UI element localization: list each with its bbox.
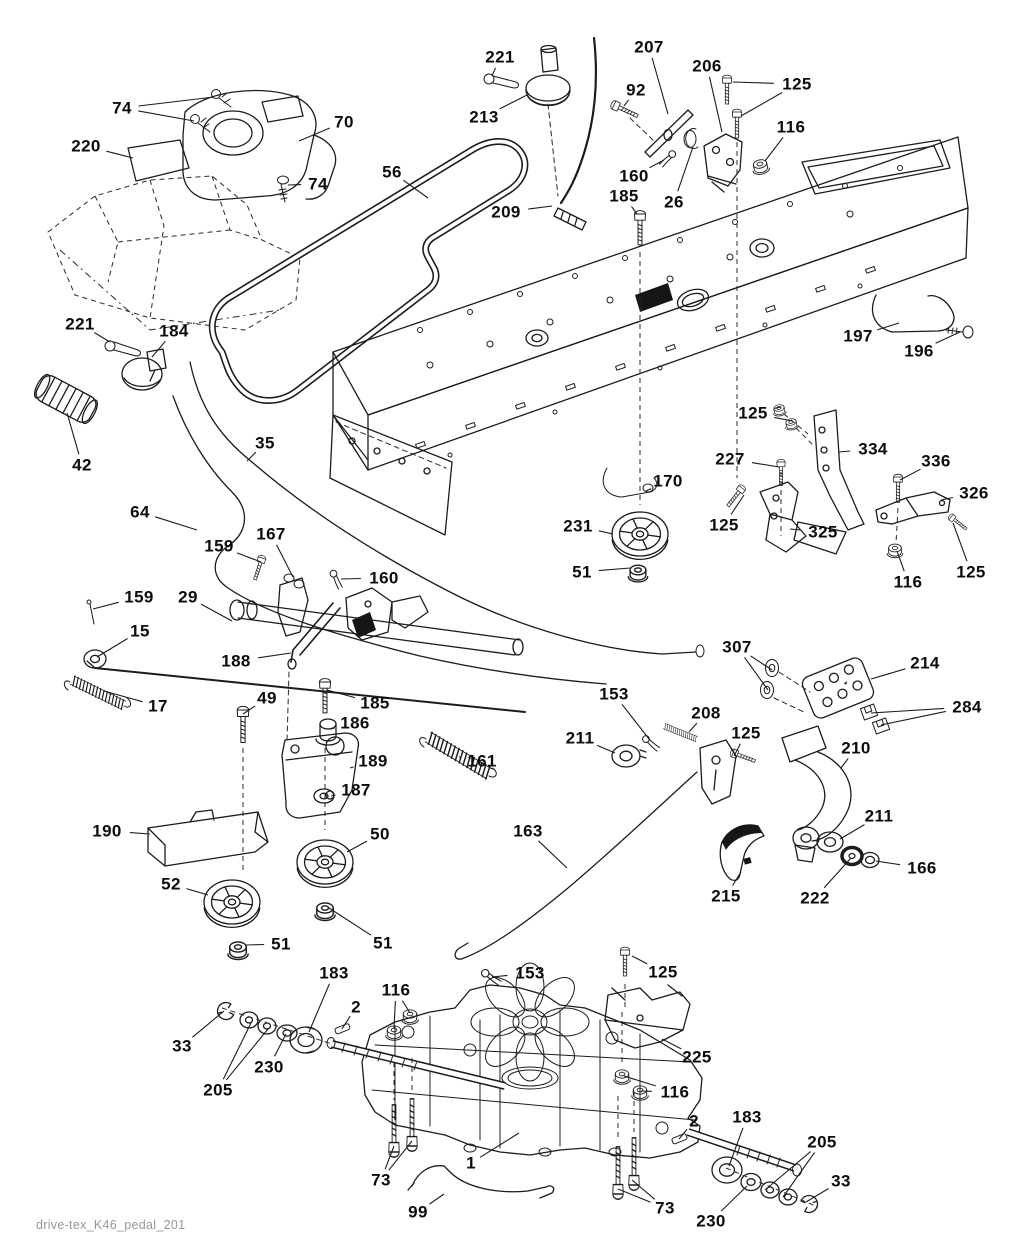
leader-line-307 — [751, 656, 772, 670]
part-label-170: 170 — [653, 473, 683, 490]
leader-line-35 — [247, 452, 256, 461]
part-label-33: 33 — [831, 1173, 851, 1190]
leader-line-211 — [597, 745, 615, 753]
leader-line-116 — [897, 551, 904, 571]
part-label-33: 33 — [172, 1038, 192, 1055]
part-label-214: 214 — [910, 655, 940, 672]
leader-line-326 — [941, 498, 953, 501]
leader-line-205 — [223, 1023, 251, 1079]
part-label-125: 125 — [738, 405, 768, 422]
leader-line-205 — [765, 1152, 811, 1190]
leader-line-230 — [721, 1186, 747, 1211]
leader-line-125 — [953, 523, 967, 561]
leader-line-307 — [745, 657, 769, 690]
part-label-186: 186 — [340, 715, 370, 732]
part-label-189: 189 — [358, 753, 388, 770]
part-label-209: 209 — [491, 204, 521, 221]
leader-line-51 — [246, 945, 264, 946]
part-label-2: 2 — [351, 999, 361, 1016]
part-label-336: 336 — [921, 453, 951, 470]
part-label-51: 51 — [572, 564, 592, 581]
leader-line-73 — [389, 1141, 412, 1170]
part-label-207: 207 — [634, 39, 664, 56]
part-label-99: 99 — [408, 1204, 428, 1221]
leader-line-183 — [729, 1128, 743, 1166]
leader-line-190 — [130, 833, 150, 834]
part-label-187: 187 — [341, 782, 371, 799]
leader-line-210 — [841, 758, 848, 768]
leader-line-163 — [538, 841, 567, 868]
leader-line-153 — [622, 704, 649, 739]
leader-line-220 — [106, 151, 133, 158]
leader-line-336 — [900, 469, 921, 480]
part-label-213: 213 — [469, 109, 499, 126]
part-label-334: 334 — [858, 441, 888, 458]
part-label-116: 116 — [382, 982, 411, 999]
leader-line-325 — [790, 529, 800, 530]
leader-line-196 — [936, 332, 960, 343]
part-label-74: 74 — [308, 176, 328, 193]
leader-line-51 — [329, 908, 371, 935]
part-label-70: 70 — [334, 114, 354, 131]
part-label-211: 211 — [865, 808, 894, 825]
part-label-183: 183 — [732, 1109, 762, 1126]
part-label-73: 73 — [655, 1200, 675, 1217]
part-label-183: 183 — [319, 965, 349, 982]
parts-diagram-page: 7470220745622121320720692125116160185262… — [0, 0, 1024, 1259]
part-label-42: 42 — [72, 457, 92, 474]
leader-line-92 — [624, 100, 629, 106]
diagram-caption: drive-tex_K46_pedal_201 — [36, 1218, 185, 1232]
leader-line-188 — [258, 653, 291, 658]
leader-line-221 — [94, 333, 110, 342]
part-label-166: 166 — [907, 860, 937, 877]
leader-line-211 — [840, 825, 865, 839]
leader-line-206 — [710, 77, 723, 132]
leader-line-116 — [624, 1076, 656, 1086]
leader-line-213 — [500, 95, 527, 109]
part-label-125: 125 — [709, 517, 739, 534]
part-label-49: 49 — [257, 690, 277, 707]
leader-line-197 — [877, 323, 899, 330]
leader-line-17 — [104, 691, 143, 702]
leader-line-160 — [649, 160, 664, 168]
part-label-51: 51 — [271, 936, 291, 953]
part-label-73: 73 — [371, 1172, 391, 1189]
leader-line-284 — [871, 708, 944, 713]
part-label-325: 325 — [808, 524, 838, 541]
part-label-222: 222 — [800, 890, 830, 907]
leader-line-15 — [97, 639, 128, 658]
part-label-208: 208 — [691, 705, 721, 722]
leader-line-42 — [67, 413, 79, 454]
leader-line-116 — [402, 1001, 410, 1013]
part-label-190: 190 — [92, 823, 122, 840]
part-label-185: 185 — [360, 695, 390, 712]
part-label-284: 284 — [952, 699, 982, 716]
leader-line-166 — [876, 861, 900, 865]
part-label-160: 160 — [369, 570, 399, 587]
leader-line-230 — [275, 1034, 287, 1056]
part-label-206: 206 — [692, 58, 722, 75]
leader-line-51 — [599, 568, 630, 571]
leader-line-125 — [731, 495, 744, 515]
part-label-1: 1 — [466, 1155, 476, 1172]
part-label-116: 116 — [777, 119, 806, 136]
leader-line-153 — [492, 975, 507, 977]
part-label-125: 125 — [782, 76, 812, 93]
leader-line-225 — [662, 1039, 681, 1049]
leader-line-2 — [679, 1129, 687, 1139]
part-label-17: 17 — [148, 698, 168, 715]
part-label-205: 205 — [203, 1082, 233, 1099]
leader-line-231 — [599, 531, 613, 534]
part-label-159: 159 — [124, 589, 154, 606]
leader-line-334 — [839, 451, 850, 452]
leader-line-160 — [341, 579, 361, 580]
leader-line-116 — [765, 137, 783, 161]
part-label-2: 2 — [689, 1113, 699, 1130]
leader-line-167 — [277, 545, 294, 577]
leader-line-222 — [824, 858, 851, 888]
part-label-227: 227 — [715, 451, 745, 468]
leader-line-227 — [752, 463, 779, 467]
part-label-29: 29 — [178, 589, 198, 606]
leader-line-185 — [632, 206, 638, 214]
leader-line-49 — [243, 706, 255, 714]
leader-line-125 — [734, 744, 740, 756]
leader-line-116 — [394, 1001, 395, 1028]
part-label-50: 50 — [370, 826, 390, 843]
leader-line-125 — [733, 82, 774, 83]
leader-line-125 — [774, 407, 781, 409]
leader-line-125 — [774, 417, 792, 421]
leader-line-74 — [138, 111, 194, 121]
leader-line-125 — [632, 956, 647, 964]
leader-line-2 — [342, 1016, 350, 1029]
part-label-125: 125 — [956, 564, 986, 581]
part-label-167: 167 — [256, 526, 286, 543]
part-label-188: 188 — [221, 653, 251, 670]
leader-line-33 — [806, 1189, 829, 1203]
part-label-116: 116 — [894, 574, 923, 591]
leader-line-208 — [689, 723, 697, 732]
part-label-159: 159 — [204, 538, 234, 555]
leader-line-74 — [139, 97, 214, 106]
part-label-52: 52 — [161, 876, 181, 893]
leader-line-215 — [733, 872, 741, 886]
leader-line-209 — [528, 206, 552, 209]
part-label-221: 221 — [65, 316, 95, 333]
part-label-35: 35 — [255, 435, 275, 452]
part-label-326: 326 — [959, 485, 989, 502]
leader-line-185 — [327, 690, 355, 698]
leader-line-159 — [237, 553, 261, 562]
leader-line-29 — [201, 604, 232, 621]
leader-line-284 — [881, 711, 946, 725]
part-label-26: 26 — [664, 194, 684, 211]
part-label-51: 51 — [373, 935, 393, 952]
part-label-153: 153 — [515, 965, 545, 982]
leader-line-184 — [152, 341, 165, 357]
part-label-231: 231 — [563, 518, 593, 535]
leader-line-50 — [347, 841, 367, 852]
part-label-211: 211 — [566, 730, 595, 747]
part-label-185: 185 — [609, 188, 639, 205]
leader-line-187 — [331, 795, 335, 796]
part-label-116: 116 — [661, 1084, 690, 1101]
part-label-64: 64 — [130, 504, 150, 521]
part-label-307: 307 — [722, 639, 752, 656]
part-label-153: 153 — [599, 686, 629, 703]
leader-line-64 — [155, 517, 197, 530]
leader-line-125 — [741, 93, 782, 117]
part-label-163: 163 — [513, 823, 543, 840]
leader-line-207 — [652, 58, 668, 114]
part-label-197: 197 — [843, 328, 873, 345]
part-label-160: 160 — [619, 168, 649, 185]
leader-line-99 — [430, 1194, 444, 1204]
leader-line-205 — [783, 1152, 815, 1197]
part-label-230: 230 — [696, 1213, 726, 1230]
leader-line-221 — [492, 68, 496, 76]
part-label-230: 230 — [254, 1059, 284, 1076]
leader-lines — [0, 0, 1024, 1259]
leader-line-70 — [299, 128, 330, 141]
part-label-220: 220 — [71, 138, 101, 155]
part-label-205: 205 — [807, 1134, 837, 1151]
part-label-225: 225 — [682, 1049, 712, 1066]
part-label-74: 74 — [112, 100, 132, 117]
leader-line-186 — [331, 728, 335, 729]
part-label-221: 221 — [485, 49, 515, 66]
part-label-196: 196 — [904, 343, 934, 360]
leader-line-33 — [192, 1011, 224, 1037]
part-label-92: 92 — [626, 82, 646, 99]
leader-line-189 — [350, 767, 354, 768]
leader-line-26 — [678, 147, 693, 191]
part-label-56: 56 — [382, 164, 402, 181]
leader-line-214 — [871, 669, 905, 679]
leader-line-1 — [480, 1133, 519, 1157]
leader-line-170 — [646, 489, 651, 491]
leader-line-56 — [403, 180, 428, 198]
part-label-161: 161 — [467, 753, 497, 770]
part-label-215: 215 — [711, 888, 741, 905]
part-label-125: 125 — [648, 964, 678, 981]
part-label-210: 210 — [841, 740, 871, 757]
leader-line-159 — [93, 602, 119, 609]
leader-line-183 — [309, 984, 329, 1032]
part-label-15: 15 — [130, 623, 150, 640]
leader-line-52 — [186, 889, 208, 895]
part-label-125: 125 — [731, 725, 761, 742]
part-label-184: 184 — [159, 323, 189, 340]
